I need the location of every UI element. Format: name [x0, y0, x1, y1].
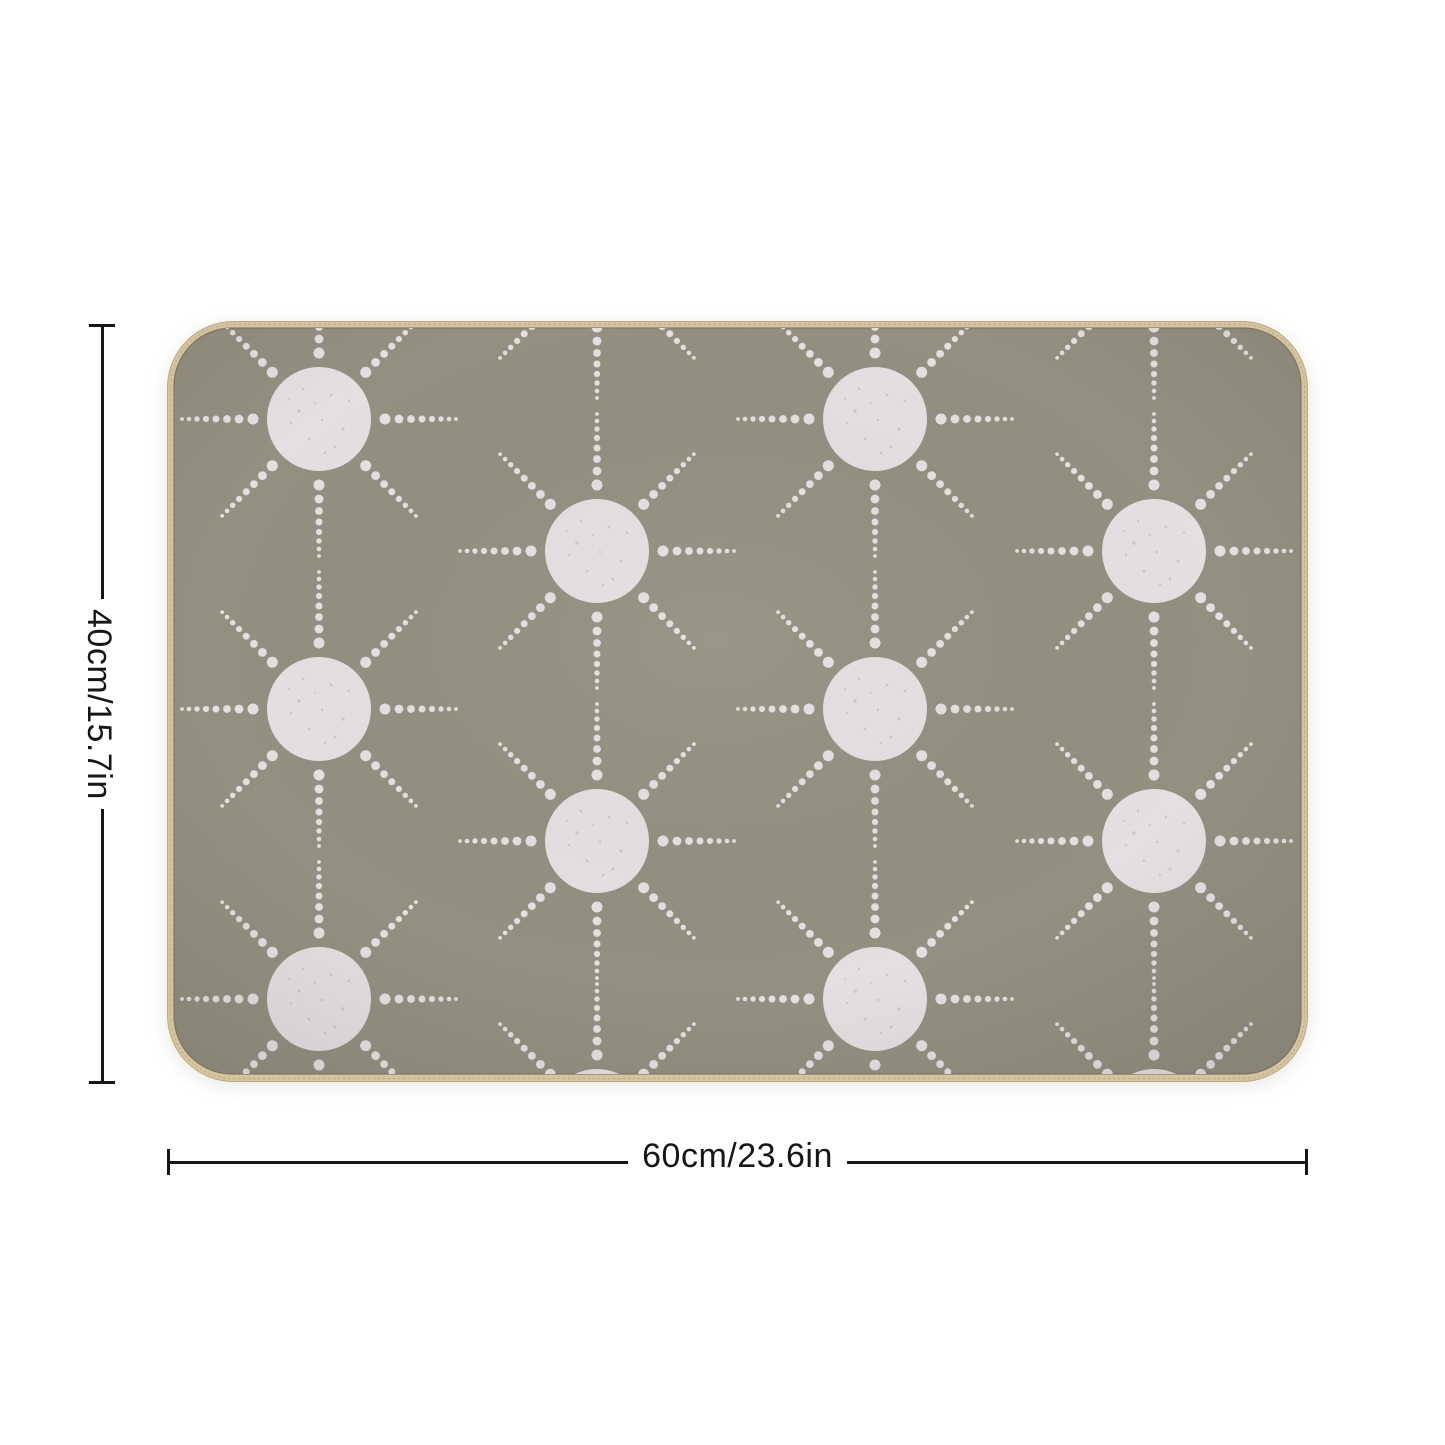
height-label: 40cm/15.7in	[82, 609, 116, 800]
width-dimension: 60cm/23.6in	[167, 1148, 1308, 1176]
sun-pattern	[174, 321, 1301, 1082]
dimension-line-segment	[170, 1161, 628, 1164]
dimension-line-segment	[101, 327, 104, 599]
dimension-line-segment	[847, 1161, 1305, 1164]
mat-photo	[167, 321, 1308, 1082]
product-dimension-figure: 40cm/15.7in 60cm/23.6in	[0, 0, 1445, 1445]
dimension-line-segment	[101, 809, 104, 1081]
dimension-right-cap	[1305, 1149, 1308, 1175]
mat-graphic	[167, 321, 1308, 1082]
dimension-bottom-cap	[89, 1081, 115, 1084]
width-label: 60cm/23.6in	[642, 1139, 833, 1173]
height-dimension: 40cm/15.7in	[88, 324, 116, 1084]
